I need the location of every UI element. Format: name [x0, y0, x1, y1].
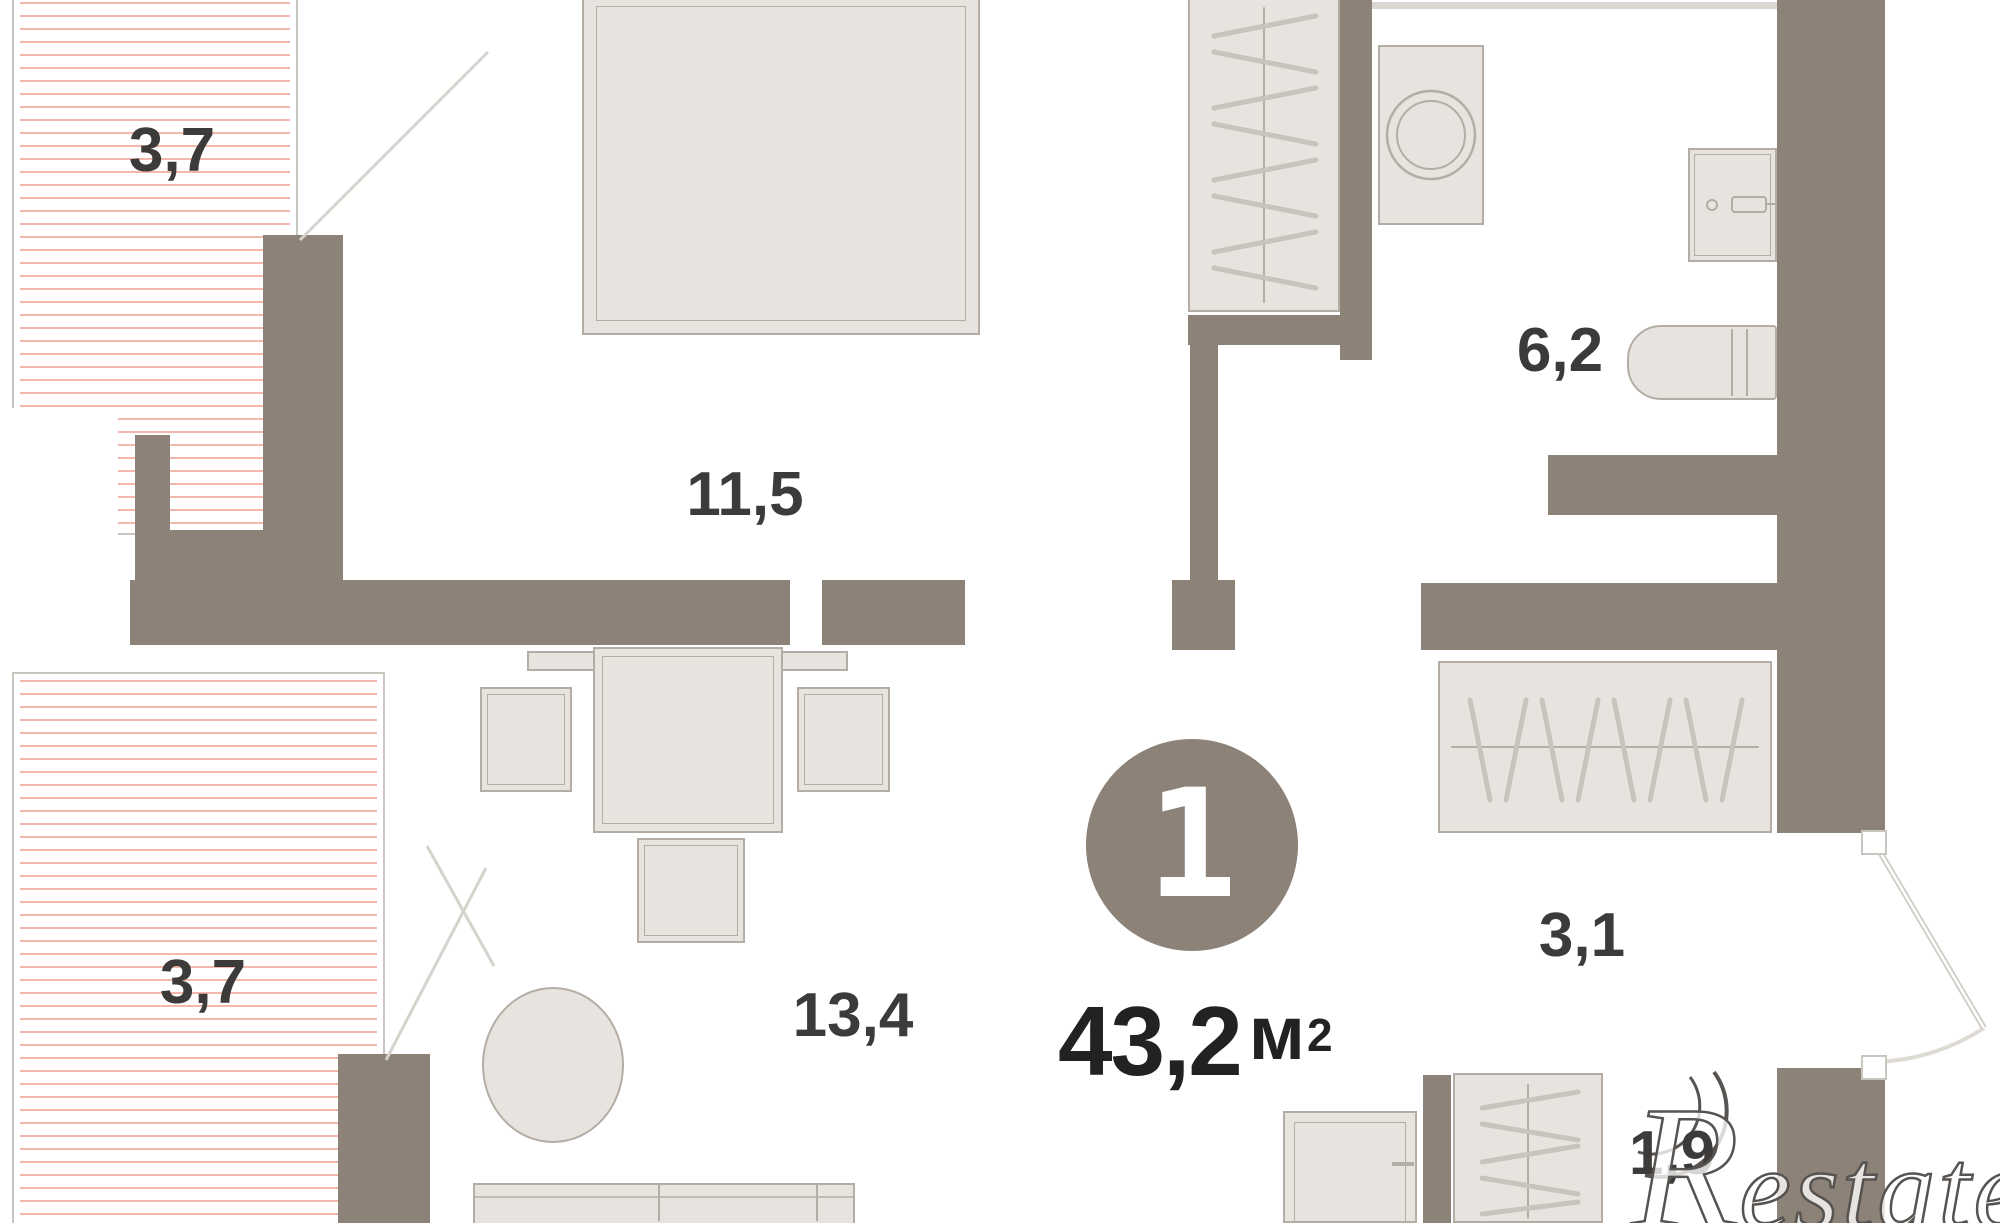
room-label-living-room: 13,4 — [733, 983, 973, 1049]
chair — [637, 838, 745, 943]
wall — [1340, 0, 1372, 360]
table-top — [602, 656, 774, 824]
wall — [130, 580, 790, 645]
wall — [338, 1054, 430, 1223]
total-area: 43,2 м2 — [1058, 992, 1331, 1090]
closet-wardrobe — [1438, 661, 1772, 833]
room-label-bathroom: 6,2 — [1460, 318, 1660, 384]
room-label-balcony-top: 3,7 — [92, 118, 252, 184]
bed — [582, 0, 980, 335]
entrance-door-leaf — [1880, 852, 1984, 1028]
dining-table — [593, 647, 783, 833]
balcony-notch-cover — [10, 408, 118, 540]
wall — [263, 235, 343, 580]
door-swing-line — [386, 868, 486, 1060]
door-panel — [1294, 1122, 1406, 1223]
armchair — [482, 987, 624, 1143]
wall — [135, 435, 170, 530]
entrance-door-leaf — [1880, 852, 1984, 1028]
watermark-text: estate — [1739, 1126, 2000, 1223]
door-hinge — [1862, 831, 1886, 854]
wall — [1172, 580, 1235, 650]
total-area-unit: м2 — [1249, 996, 1331, 1072]
room-label-bedroom: 11,5 — [640, 462, 850, 528]
wall — [135, 530, 343, 580]
wall — [1190, 345, 1218, 580]
total-area-value: 43,2 — [1058, 992, 1241, 1090]
bed-mattress — [596, 6, 966, 321]
door-swing-line — [300, 52, 488, 240]
wall — [1423, 1075, 1451, 1223]
sink-basin — [1694, 154, 1771, 256]
window-line — [1372, 2, 1777, 9]
storage-door — [1283, 1111, 1417, 1223]
wall — [1548, 455, 1777, 515]
watermark-initial: R — [1631, 1069, 1740, 1223]
chair-seat — [804, 694, 883, 785]
watermark: Restate — [1631, 1079, 2000, 1223]
area-exponent: 2 — [1307, 1009, 1333, 1061]
chair — [480, 687, 572, 792]
chair-seat — [487, 694, 565, 785]
chair — [797, 687, 890, 792]
room-label-balcony-bottom: 3,7 — [123, 950, 283, 1016]
wall — [1421, 583, 1778, 650]
door-swing-arc — [1869, 1028, 1984, 1062]
chair-seat — [644, 845, 738, 936]
wall — [1188, 315, 1372, 345]
door-swing-line — [427, 846, 494, 966]
room-label-hallway: 3,1 — [1482, 903, 1682, 969]
wardrobe — [1188, 0, 1340, 312]
wall — [822, 580, 965, 645]
sink-vanity — [1688, 148, 1777, 262]
sofa — [473, 1183, 855, 1223]
wall — [1777, 0, 1885, 833]
washing-machine — [1378, 45, 1484, 225]
unit-number: 1 — [1147, 758, 1237, 932]
unit-number-badge: 1 — [1086, 739, 1298, 951]
floor-plan: 3,7 11,5 6,2 13,4 3,7 3,1 1,9 1 43,2 м2 … — [0, 0, 2000, 1223]
